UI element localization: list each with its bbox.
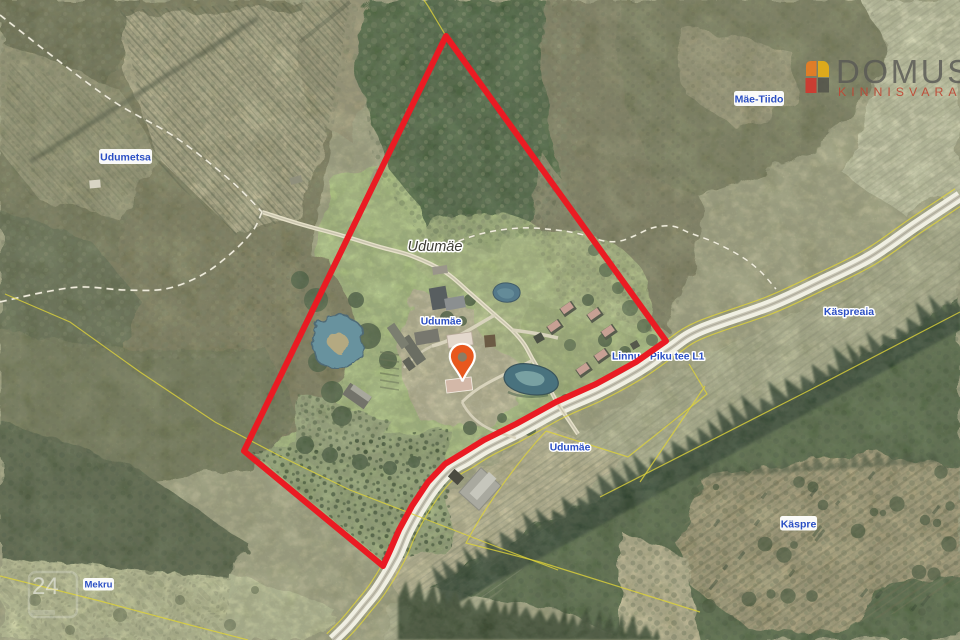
svg-text:Udumäe: Udumäe <box>550 443 591 454</box>
svg-text:Mekru: Mekru <box>85 580 113 591</box>
svg-text:Käspre: Käspre <box>781 519 817 531</box>
svg-text:Udumäe: Udumäe <box>421 317 462 328</box>
svg-text:Udumäe: Udumäe <box>408 239 463 255</box>
svg-text:Udumetsa: Udumetsa <box>100 152 151 164</box>
svg-text:Piku tee L1: Piku tee L1 <box>650 352 705 363</box>
svg-text:24: 24 <box>32 573 59 600</box>
svg-text:KINNISVARA: KINNISVARA <box>838 85 960 99</box>
svg-text:Käspreaia: Käspreaia <box>824 306 874 318</box>
svg-text:Mäe-Tiido: Mäe-Tiido <box>735 94 784 106</box>
